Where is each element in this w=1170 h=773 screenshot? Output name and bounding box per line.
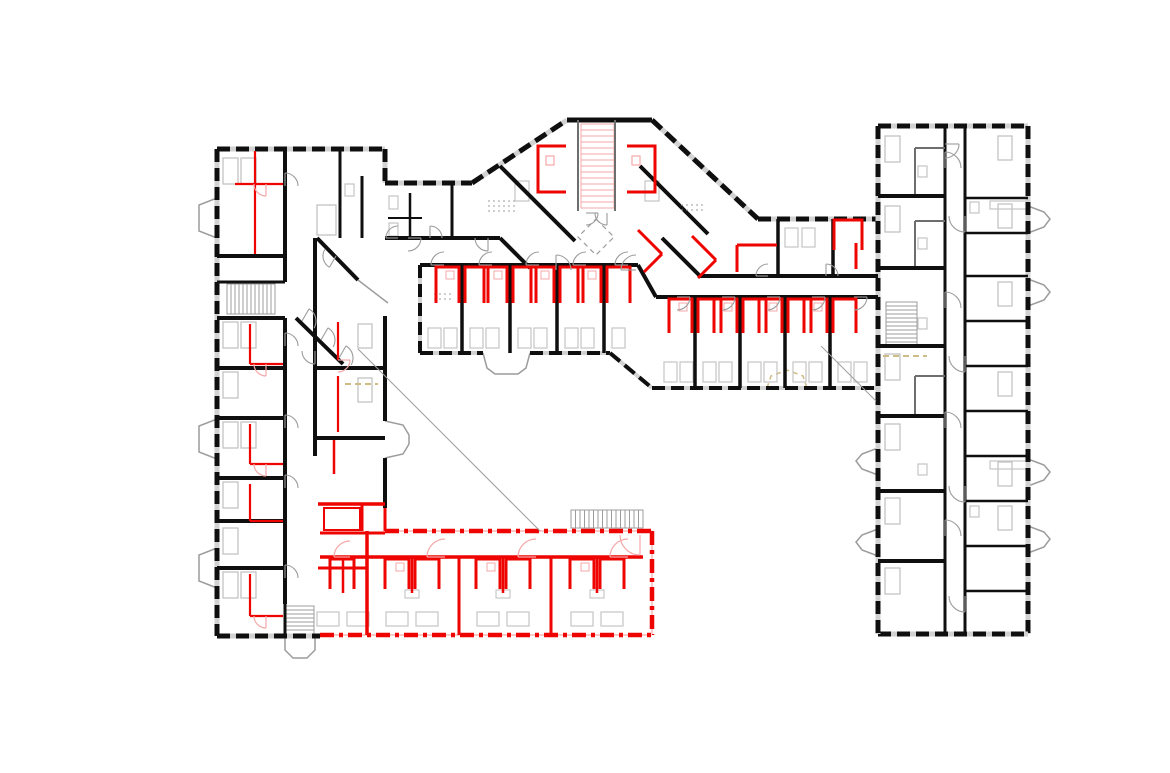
- floor-plan-canvas: [40, 16, 1170, 757]
- floor-plan: [40, 16, 1170, 757]
